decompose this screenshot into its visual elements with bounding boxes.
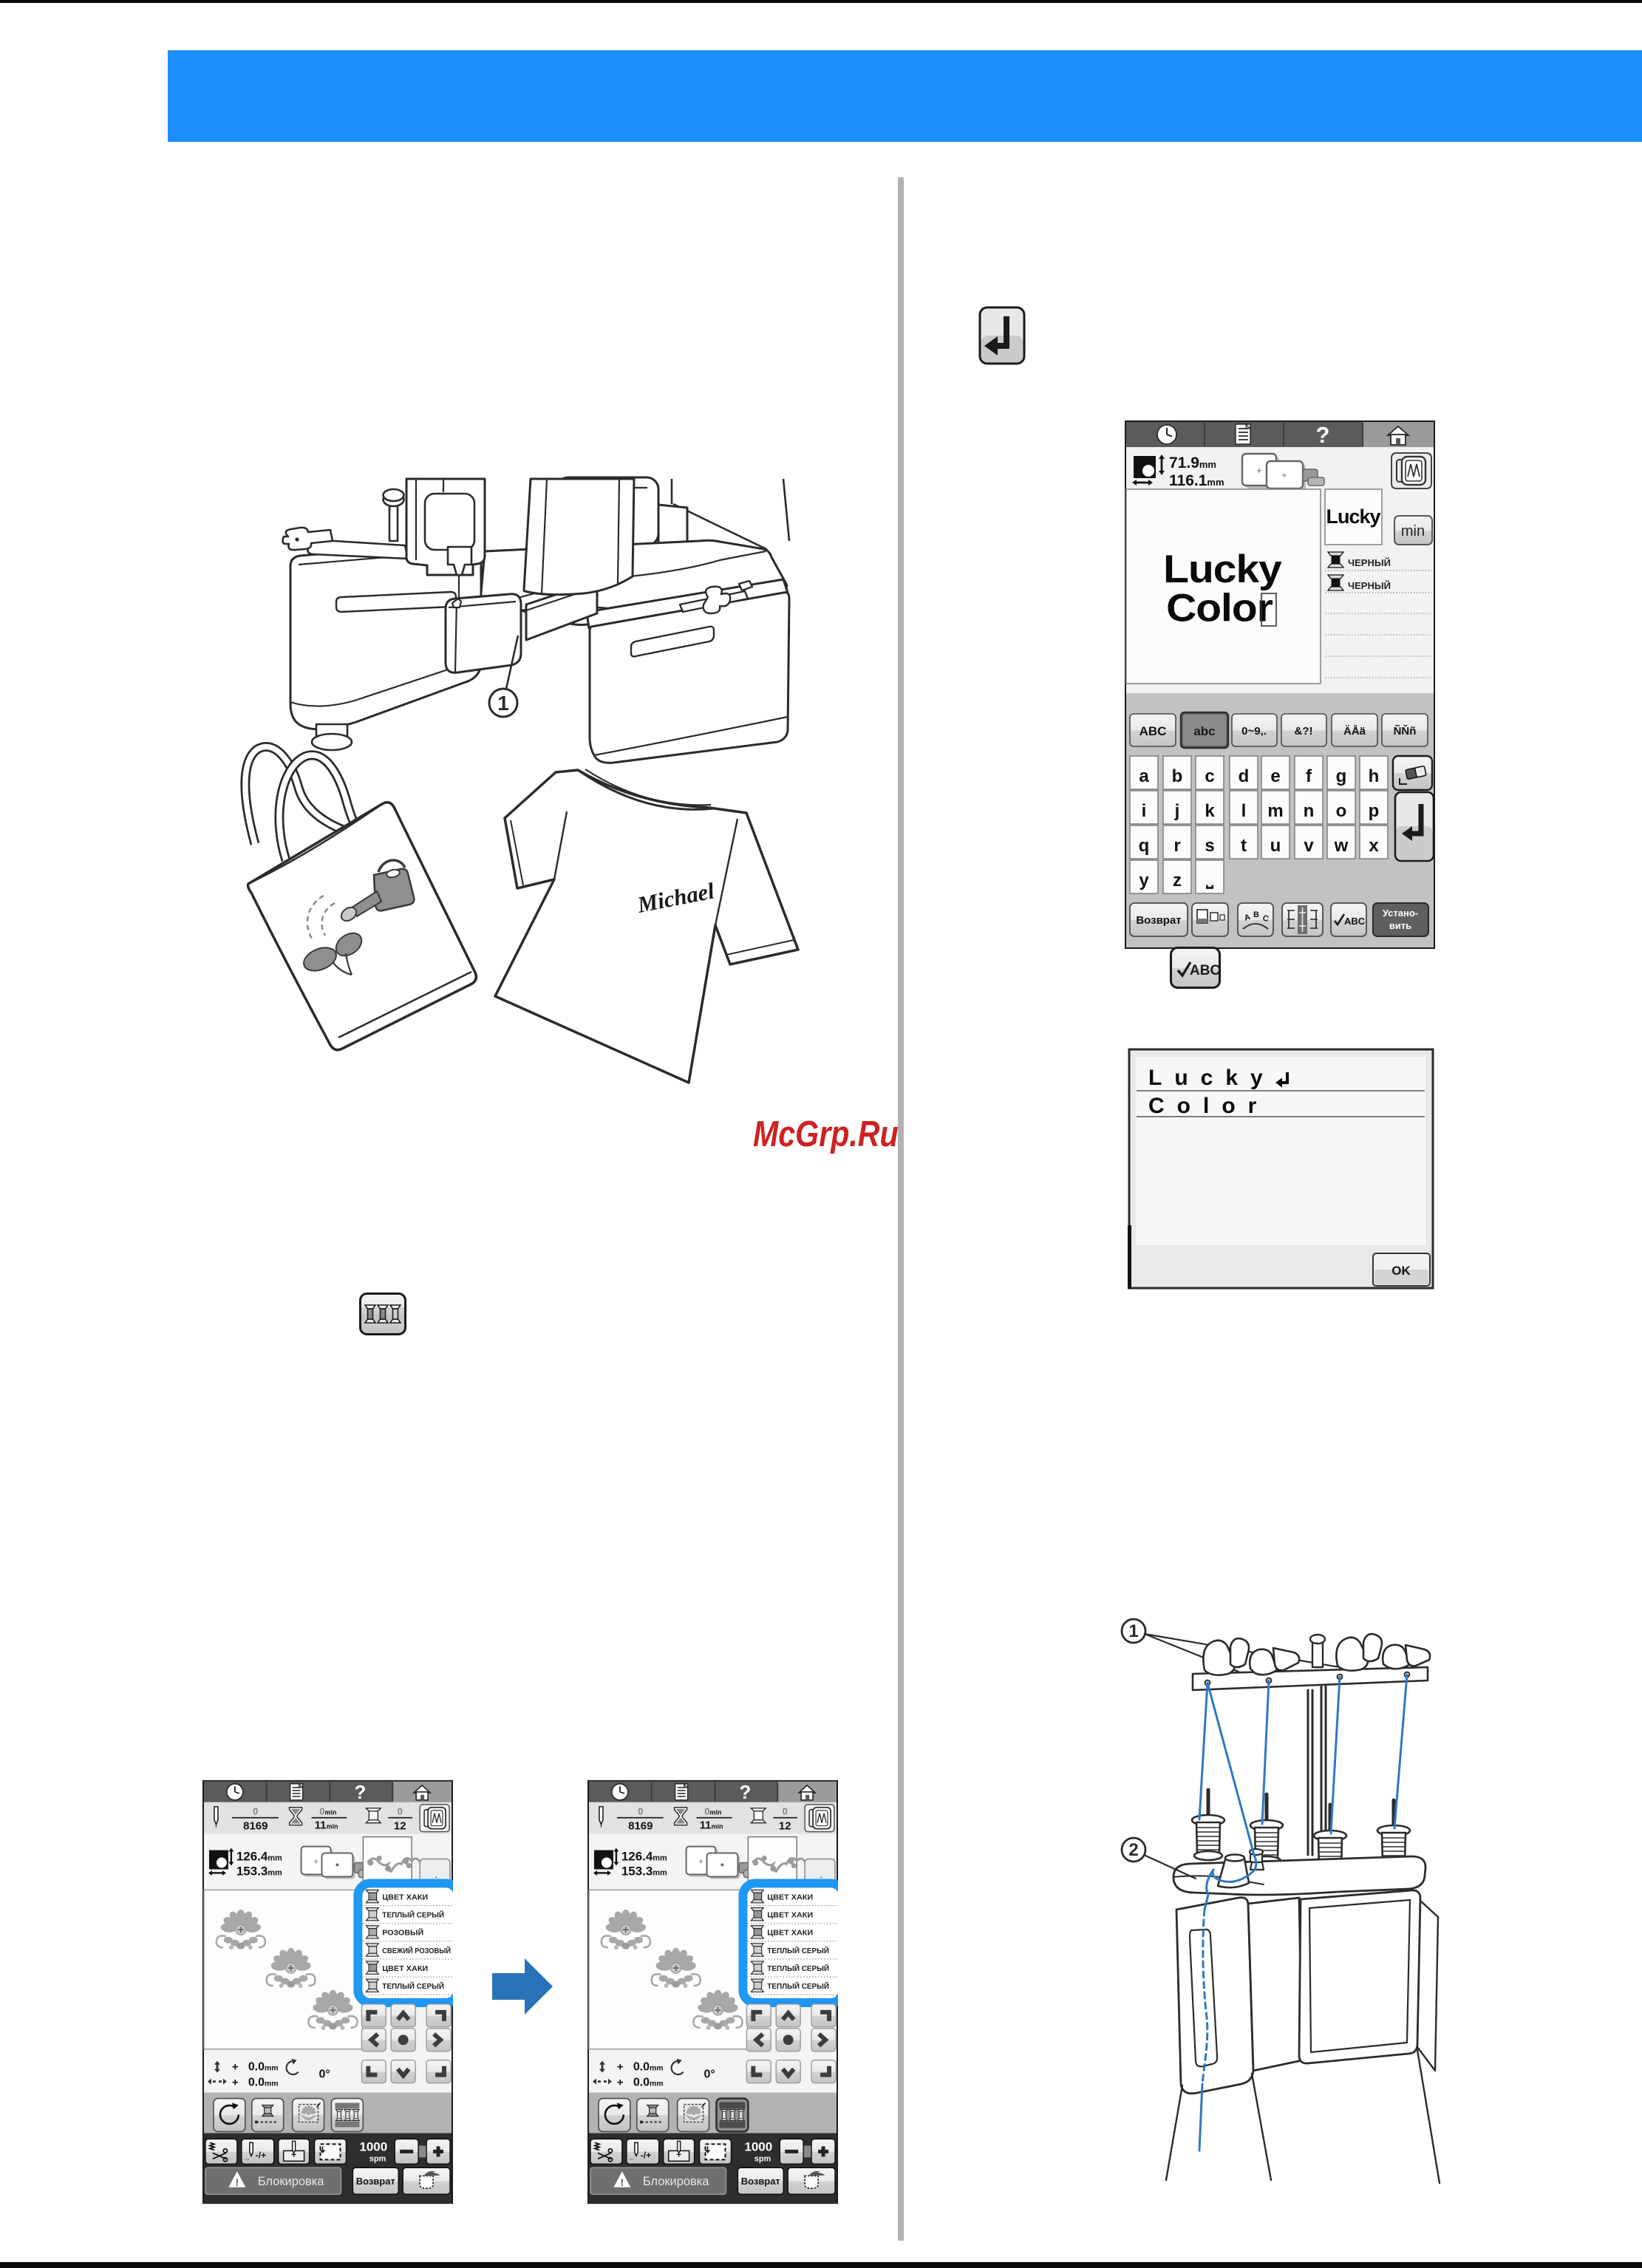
svg-text:ÄÅä: ÄÅä (1343, 725, 1366, 738)
svg-text:&?!: &?! (1295, 725, 1313, 738)
svg-text:ABC: ABC (1139, 724, 1167, 738)
svg-text:ЦВЕТ ХАКИ: ЦВЕТ ХАКИ (382, 1965, 428, 1973)
svg-text:h: h (1369, 766, 1380, 786)
svg-text:ТЕПЛЫЙ СЕРЫЙ: ТЕПЛЫЙ СЕРЫЙ (767, 1964, 829, 1973)
svg-text:spm: spm (369, 2154, 386, 2163)
svg-text:+: + (232, 2061, 239, 2074)
svg-text:ABC: ABC (1344, 916, 1366, 927)
svg-text:вить: вить (1389, 920, 1411, 931)
svg-text:1000: 1000 (744, 2139, 772, 2153)
svg-text:Блокировка: Блокировка (643, 2175, 709, 2188)
svg-text:ТЕПЛЫЙ СЕРЫЙ: ТЕПЛЫЙ СЕРЫЙ (382, 1982, 444, 1991)
svg-text:!: ! (621, 2177, 624, 2188)
svg-text:s: s (1205, 836, 1214, 856)
svg-text:РОЗОВЫЙ: РОЗОВЫЙ (382, 1929, 423, 1938)
svg-text:?: ? (354, 1782, 366, 1803)
svg-text:ТЕПЛЫЙ СЕРЫЙ: ТЕПЛЫЙ СЕРЫЙ (382, 1910, 444, 1919)
svg-text:x: x (1369, 836, 1379, 856)
svg-text:СВЕЖИЙ РОЗОВЫЙ: СВЕЖИЙ РОЗОВЫЙ (382, 1947, 451, 1955)
svg-text:v: v (1304, 836, 1314, 856)
svg-text:Lucky: Lucky (1163, 547, 1282, 590)
svg-text:12: 12 (779, 1820, 791, 1833)
svg-text:0°: 0° (704, 2068, 715, 2081)
svg-text:...: ... (244, 2153, 249, 2161)
svg-text:g: g (1336, 766, 1347, 786)
svg-text:-/+: -/+ (641, 2150, 651, 2160)
svg-text:min: min (1401, 523, 1425, 539)
svg-text:?: ? (739, 1782, 751, 1803)
svg-text:u: u (1270, 836, 1281, 856)
svg-text:8169: 8169 (628, 1820, 653, 1833)
svg-text:t: t (1241, 836, 1247, 856)
svg-text:+: + (617, 2061, 624, 2074)
svg-text:y: y (1139, 871, 1149, 890)
svg-text:+: + (313, 1858, 318, 1867)
svg-text:1: 1 (497, 692, 509, 715)
svg-text:b: b (1172, 766, 1183, 786)
svg-text:...: ... (629, 2153, 634, 2161)
svg-text:l: l (1241, 801, 1247, 821)
svg-text:OK: OK (1391, 1264, 1411, 1278)
svg-text:-/+: -/+ (256, 2150, 266, 2160)
svg-text:i: i (1142, 801, 1147, 821)
svg-text:1000: 1000 (359, 2139, 387, 2153)
svg-text:Color: Color (1166, 586, 1273, 630)
svg-text:8169: 8169 (243, 1820, 268, 1833)
svg-text:abc: abc (1193, 724, 1215, 738)
svg-text:0~9,.: 0~9,. (1241, 725, 1267, 738)
svg-text:a: a (1139, 766, 1149, 786)
svg-text:c: c (1205, 766, 1214, 786)
svg-text:+: + (617, 2077, 624, 2089)
svg-text:0: 0 (638, 1806, 643, 1817)
svg-text:ЦВЕТ ХАКИ: ЦВЕТ ХАКИ (767, 1893, 813, 1901)
svg-text:+: + (1256, 465, 1262, 476)
svg-text:k: k (1205, 801, 1215, 821)
svg-text:d: d (1239, 766, 1250, 786)
svg-text:n: n (1304, 801, 1315, 821)
svg-text:Возврат: Возврат (1136, 914, 1181, 927)
svg-text:Устано-: Устано- (1383, 907, 1418, 919)
svg-text:Lucky: Lucky (1148, 1066, 1275, 1090)
svg-text:e: e (1270, 766, 1280, 786)
svg-text:Возврат: Возврат (356, 2176, 395, 2187)
svg-text:0: 0 (398, 1806, 403, 1817)
svg-text:ТЕПЛЫЙ СЕРЫЙ: ТЕПЛЫЙ СЕРЫЙ (767, 1947, 829, 1955)
svg-text:Возврат: Возврат (741, 2176, 780, 2187)
svg-text:ЦВЕТ ХАКИ: ЦВЕТ ХАКИ (767, 1911, 813, 1919)
svg-text:1: 1 (1128, 1621, 1138, 1641)
svg-text:2: 2 (1128, 1840, 1138, 1860)
svg-text:ЦВЕТ ХАКИ: ЦВЕТ ХАКИ (767, 1930, 813, 1938)
svg-text:ÑŇñ: ÑŇñ (1394, 724, 1417, 738)
svg-text:w: w (1334, 836, 1349, 856)
svg-text:+: + (698, 1858, 703, 1867)
svg-text:j: j (1174, 801, 1180, 821)
svg-text:ЧЕРНЫЙ: ЧЕРНЫЙ (1348, 557, 1391, 568)
svg-text:o: o (1336, 801, 1347, 821)
svg-text:m: m (1267, 801, 1283, 821)
svg-text:p: p (1369, 801, 1380, 821)
svg-text:ЦВЕТ ХАКИ: ЦВЕТ ХАКИ (382, 1893, 428, 1901)
svg-text:spm: spm (754, 2154, 771, 2163)
svg-text:!: ! (236, 2177, 239, 2188)
svg-text:ЧЕРНЫЙ: ЧЕРНЫЙ (1348, 580, 1391, 591)
svg-text:Блокировка: Блокировка (258, 2175, 324, 2188)
svg-text:⎵: ⎵ (1205, 869, 1213, 889)
svg-text:0°: 0° (319, 2068, 330, 2081)
svg-text:q: q (1139, 836, 1150, 856)
svg-text:r: r (1173, 836, 1180, 856)
svg-text:B: B (1253, 910, 1259, 919)
svg-text:Lucky: Lucky (1326, 505, 1380, 528)
svg-text:0: 0 (253, 1806, 258, 1817)
svg-text:z: z (1173, 871, 1182, 890)
svg-text:?: ? (1316, 422, 1330, 448)
svg-text:Color: Color (1148, 1094, 1269, 1118)
svg-text:ABC: ABC (1190, 963, 1220, 978)
svg-text:ТЕПЛЫЙ СЕРЫЙ: ТЕПЛЫЙ СЕРЫЙ (767, 1982, 829, 1991)
svg-text:f: f (1306, 766, 1312, 786)
svg-text:+: + (1281, 470, 1287, 480)
svg-text:0: 0 (783, 1806, 788, 1817)
svg-text:+: + (232, 2077, 239, 2089)
svg-text:12: 12 (394, 1820, 406, 1833)
